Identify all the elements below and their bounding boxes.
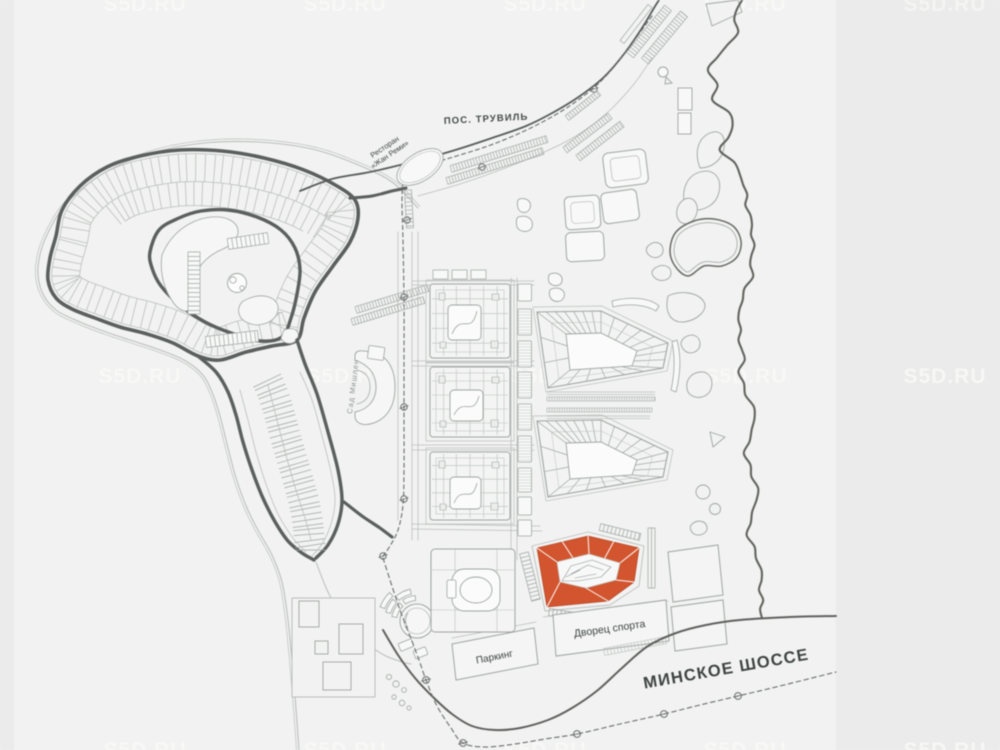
svg-text:S5D.RU: S5D.RU [704, 365, 787, 388]
svg-text:S5D.RU: S5D.RU [903, 0, 986, 16]
svg-text:S5D.RU: S5D.RU [903, 739, 986, 750]
svg-text:S5D.RU: S5D.RU [503, 739, 586, 750]
svg-text:S5D.RU: S5D.RU [98, 365, 181, 388]
svg-text:S5D.RU: S5D.RU [303, 0, 386, 16]
svg-text:S5D.RU: S5D.RU [103, 0, 186, 16]
svg-text:S5D.RU: S5D.RU [503, 0, 586, 16]
svg-text:S5D.RU: S5D.RU [703, 739, 786, 750]
svg-text:S5D.RU: S5D.RU [303, 739, 386, 750]
svg-text:S5D.RU: S5D.RU [903, 365, 986, 388]
svg-text:S5D.RU: S5D.RU [103, 739, 186, 750]
